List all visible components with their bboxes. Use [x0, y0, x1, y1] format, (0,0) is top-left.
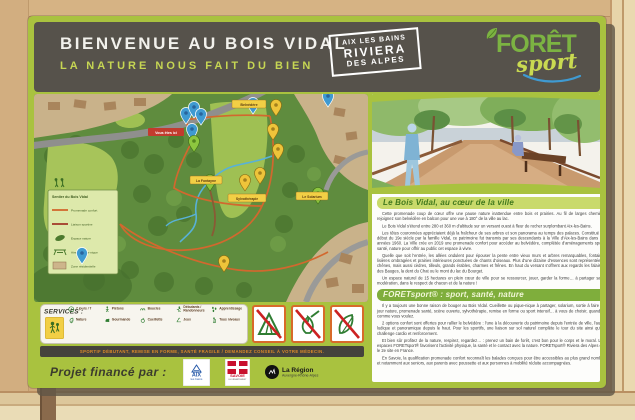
page-title: BIENVENUE AU BOIS VIDAL	[60, 34, 347, 54]
service-item: Tous niveaux	[211, 317, 244, 324]
sign-panel: BIENVENUE AU BOIS VIDAL LA NATURE NOUS F…	[28, 16, 606, 388]
wood-frame-top	[0, 0, 635, 17]
no-picking-icon	[330, 305, 364, 343]
clock-icon	[68, 306, 75, 313]
berry-icon	[140, 317, 147, 324]
service-item: Apprentissage	[211, 306, 244, 313]
service-item: 7 jours / 7	[68, 306, 101, 313]
service-item: Jeux	[175, 317, 208, 324]
svg-text:Belvédère: Belvédère	[240, 103, 257, 107]
service-item: Boucles	[140, 306, 173, 313]
no-fire-icon	[291, 305, 325, 343]
warning-text: SPORTIF DÉBUTANT, REMISE EN FORME, SANTÉ…	[80, 349, 324, 354]
park-map: Sentier du Bois Vidal Promenade confort …	[34, 94, 368, 302]
services-box: SERVICES : 7 jours / 7	[40, 304, 248, 344]
savoie-logo: SAVOIE LE DÉPARTEMENT	[225, 359, 249, 385]
leaf-icon	[68, 317, 75, 324]
svg-text:Le Solarium: Le Solarium	[302, 195, 321, 199]
logo-swoosh	[522, 72, 582, 84]
foretsport-logo: FORÊT sport	[482, 26, 598, 88]
header-band: BIENVENUE AU BOIS VIDAL LA NATURE NOUS F…	[34, 22, 600, 92]
map-label-you-are-here: Vous êtes ici	[148, 128, 184, 136]
region-aura-logo: La Région Auvergne-Rhône-Alpes	[265, 359, 349, 385]
paragraph: Il y a toujours une bonne raison de boug…	[377, 304, 600, 319]
section2-heading: FORETsport® : sport, santé, nature	[377, 289, 600, 301]
map-label-sylvotherapie: Sylvothérapie	[228, 194, 266, 202]
savoie-cross-icon	[227, 361, 247, 374]
hiker-icon	[211, 317, 218, 324]
paragraph: Cette promenade coup de cœur offre une p…	[377, 212, 600, 222]
park-illustration	[372, 94, 600, 194]
paragraph: Un espace naturel de 15 hectares en plei…	[377, 276, 600, 286]
service-item: Débutants / Randonneurs	[175, 306, 208, 313]
no-camping-icon	[252, 305, 286, 343]
swan-icon	[175, 317, 182, 324]
legend-item-1: Promenade confort	[71, 209, 97, 213]
runner-icon	[175, 306, 182, 313]
wood-frame-right	[610, 0, 635, 420]
riviera-des-alpes-badge: AIX LES BAINS RIVIERA DES ALPES	[328, 27, 421, 76]
legend-item-5: Zone résidentielle	[71, 265, 96, 269]
svg-text:La Fontayne: La Fontayne	[196, 179, 216, 183]
sign-post	[40, 384, 56, 420]
section1-heading: Le Bois Vidal, au cœur de la ville	[377, 197, 600, 209]
service-item: Gourmande	[104, 317, 137, 324]
right-column: Le Bois Vidal, au cœur de la ville Cette…	[372, 94, 600, 382]
paragraph: 2 options confort sont offertes pour ral…	[377, 321, 600, 336]
map-label-belvedere: Belvédère	[232, 100, 266, 108]
map-legend-title: Sentier du Bois Vidal	[52, 195, 88, 199]
legend-item-2: Liaison sportive	[71, 223, 93, 227]
paragraph: Quelle que soit l'entrée, les allées ond…	[377, 253, 600, 274]
region-roundel-icon	[265, 365, 279, 379]
paragraph: Le Bois Vidal s'étend entre 280 et 360 m…	[377, 224, 600, 229]
service-item: Nature	[68, 317, 101, 324]
svg-text:Sylvothérapie: Sylvothérapie	[236, 197, 258, 201]
article-text: Le Bois Vidal, au cœur de la ville Cette…	[372, 194, 600, 369]
medical-warning-strip: SPORTIF DÉBUTANT, REMISE EN FORME, SANTÉ…	[40, 346, 364, 357]
map-label-solarium: Le Solarium	[296, 192, 328, 200]
foretsport-mini-logo	[45, 317, 64, 339]
wood-frame-bottom	[0, 391, 635, 420]
walker-icon	[104, 306, 111, 313]
service-item: Piétons	[104, 306, 137, 313]
funding-footer: Projet financé par : AIX les bains SAVOI…	[50, 359, 370, 385]
paragraph: Et bien sûr profitez de la nature, respi…	[377, 338, 600, 353]
map-label-fontayne: La Fontayne	[190, 176, 222, 184]
aix-les-bains-logo: AIX les bains	[183, 359, 209, 385]
legend-item-3: Espace nature	[71, 237, 91, 241]
footprints-icon	[211, 306, 218, 313]
prohibition-icons	[252, 305, 366, 345]
funding-label: Projet financé par :	[50, 365, 167, 379]
paragraph: En Savoie, la qualification promenade co…	[377, 356, 600, 366]
wood-frame-left	[0, 0, 29, 420]
svg-text:Vous êtes ici: Vous êtes ici	[155, 131, 177, 135]
page-subtitle: LA NATURE NOUS FAIT DU BIEN	[60, 60, 313, 72]
service-item: Cueillette	[140, 317, 173, 324]
loops-icon	[140, 306, 147, 313]
squirrel-icon	[104, 317, 111, 324]
paragraph: Les têtes couronnées appréciaient déjà l…	[377, 231, 600, 252]
